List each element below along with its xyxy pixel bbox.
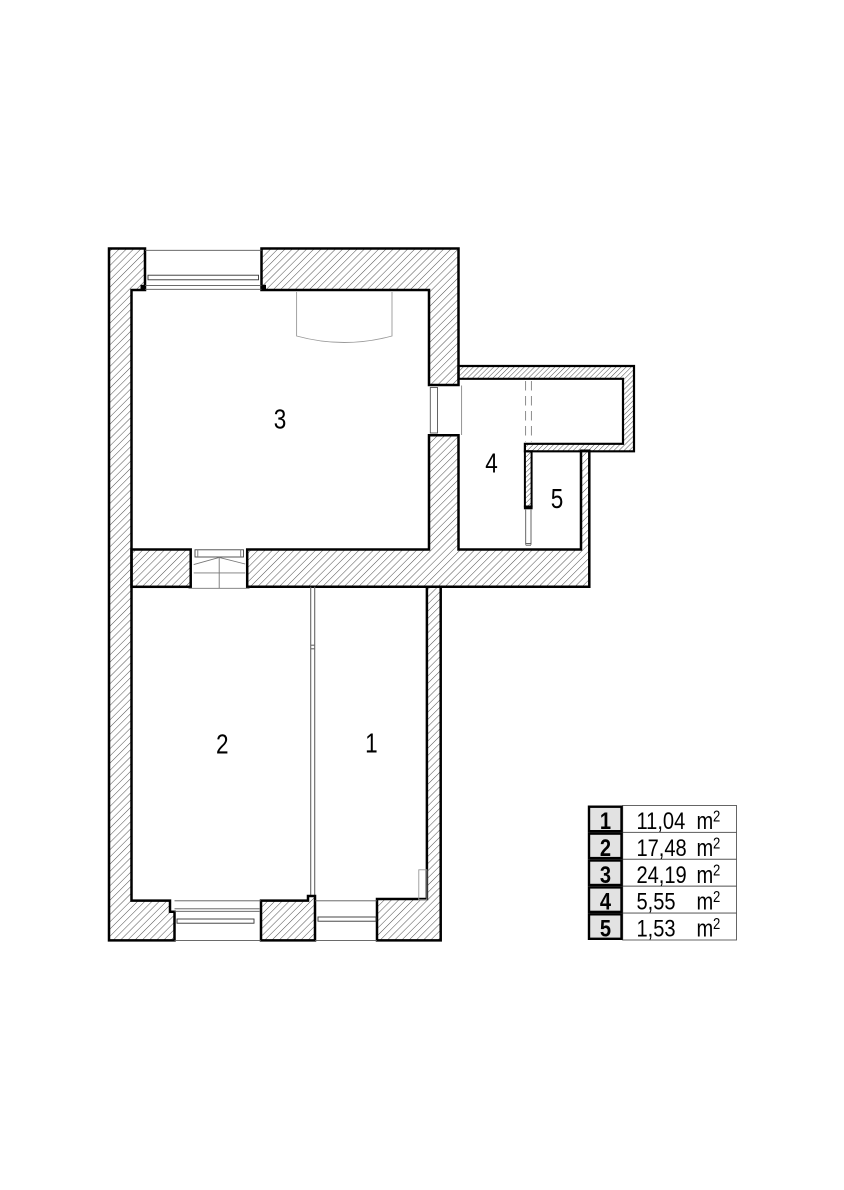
svg-text:1: 1 [600,807,611,834]
svg-text:m: m [697,834,714,861]
svg-text:m: m [697,861,714,888]
svg-text:m: m [697,888,714,915]
svg-text:2: 2 [600,834,611,861]
svg-text:2: 2 [713,916,720,933]
svg-text:2: 2 [713,835,720,852]
svg-text:5: 5 [551,484,564,515]
svg-text:4: 4 [600,888,612,915]
svg-text:5,55: 5,55 [636,888,675,915]
svg-text:1: 1 [365,728,378,759]
svg-text:24,19: 24,19 [636,861,686,888]
svg-text:1,53: 1,53 [636,915,675,942]
svg-text:4: 4 [485,448,498,479]
svg-text:2: 2 [713,889,720,906]
svg-text:2: 2 [713,862,720,879]
svg-text:11,04: 11,04 [636,807,685,834]
svg-text:3: 3 [600,861,611,888]
svg-text:2: 2 [216,729,229,760]
svg-text:2: 2 [713,808,720,825]
svg-text:5: 5 [600,915,611,942]
svg-text:m: m [697,807,714,834]
svg-text:3: 3 [274,404,287,435]
svg-text:17,48: 17,48 [636,834,686,861]
svg-text:m: m [697,915,714,942]
